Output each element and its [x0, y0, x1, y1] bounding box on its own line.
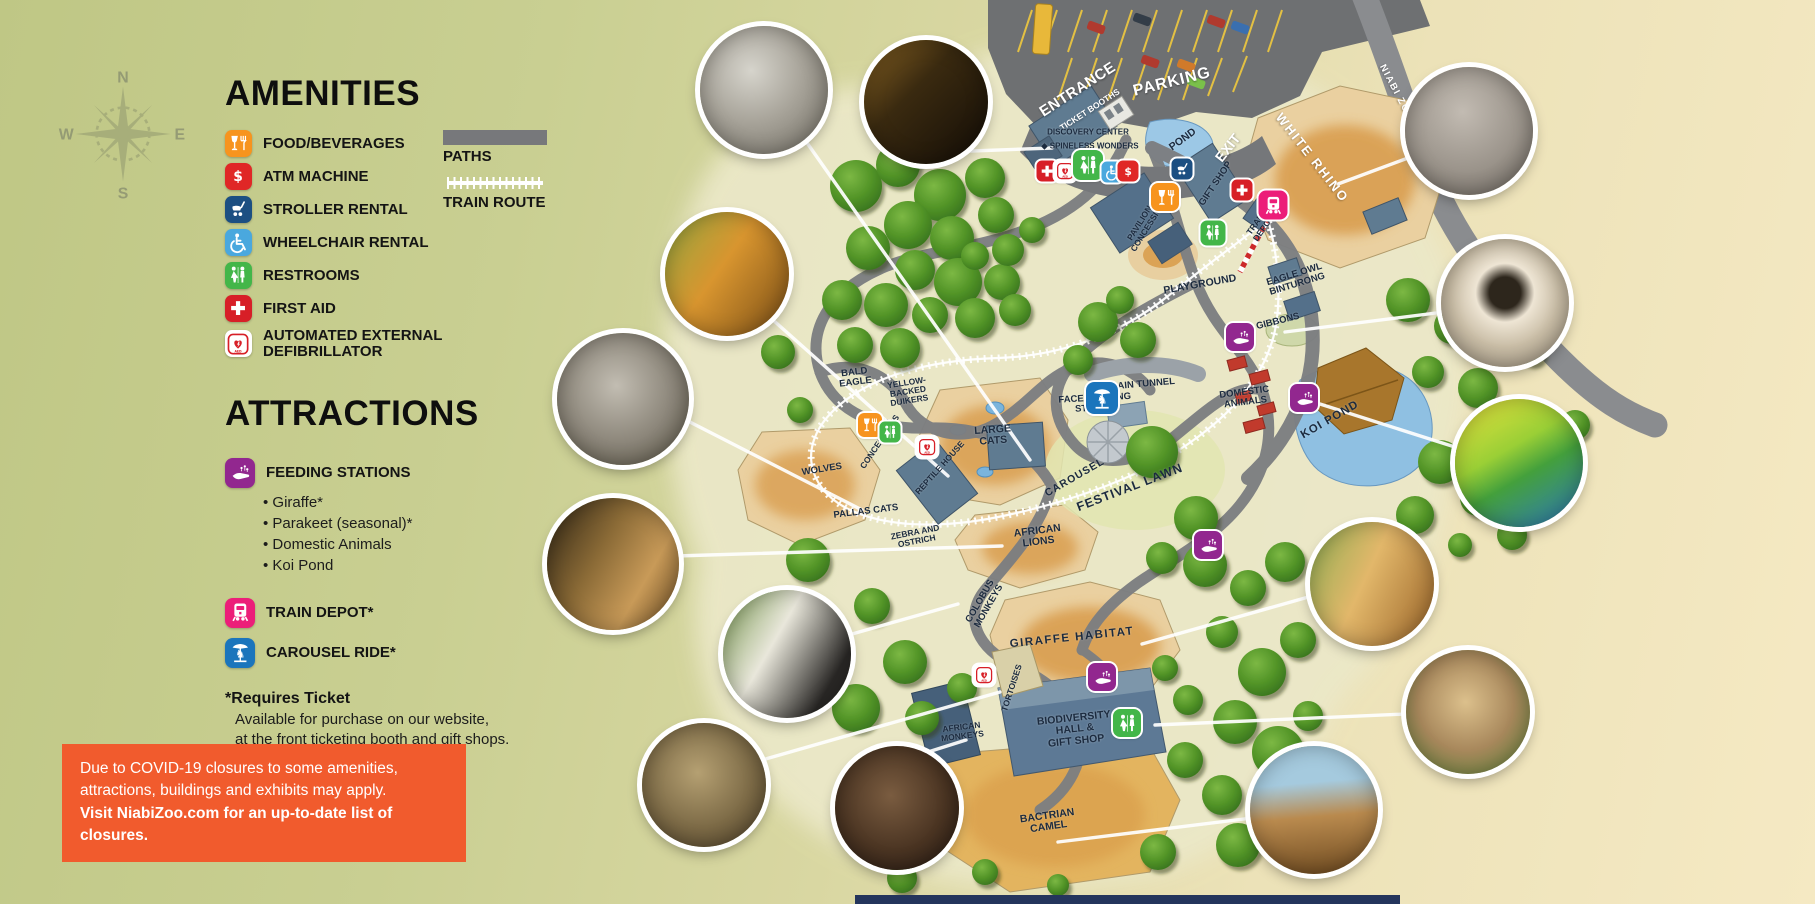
feeding-bullet: Koi Pond — [263, 557, 585, 574]
large-cats-label: LARGE CATS — [974, 423, 1012, 448]
first-aid-icon — [225, 295, 252, 322]
carousel-ride-icon: ♞ — [225, 638, 255, 668]
lioness-photo — [547, 498, 679, 630]
legend-item-first-aid: FIRST AID — [225, 295, 585, 322]
svg-text:AED: AED — [1062, 175, 1068, 178]
feeding-stations-icon — [225, 458, 255, 488]
food-beverages-icon — [225, 130, 252, 157]
restrooms-icon — [1201, 221, 1226, 246]
feeding-station-icon — [1194, 531, 1222, 559]
feeding-station-icon — [1290, 384, 1318, 412]
notice-line: Due to COVID-19 closures to some ameniti… — [80, 758, 448, 780]
snow-leopard-photo — [700, 26, 828, 154]
african-monkey-photo — [835, 746, 959, 870]
restrooms-icon — [880, 422, 901, 443]
bald-eagle-label: BALD EAGLE — [838, 366, 873, 390]
legend-item-restrooms: RESTROOMS — [225, 262, 585, 289]
svg-text:AED: AED — [924, 451, 930, 454]
train-route-label: TRAIN ROUTE — [443, 195, 573, 211]
svg-text:♞: ♞ — [235, 648, 245, 661]
compass-w: W — [59, 126, 74, 143]
feeding-bullet: Parakeet (seasonal)* — [263, 515, 585, 532]
feeding-station-icon — [1088, 663, 1116, 691]
map-bottom-edge — [855, 895, 1400, 904]
legend-item-train-depot: TRAIN DEPOT* — [225, 598, 585, 628]
stroller-icon — [1172, 159, 1193, 180]
feeding-bullet: Domestic Animals — [263, 536, 585, 553]
compass-s: S — [118, 186, 129, 200]
restrooms-icon — [1073, 150, 1103, 180]
requires-ticket-note: *Requires Ticket — [225, 690, 585, 708]
svg-text:AED: AED — [981, 679, 987, 682]
feeding-stations-bullets: Giraffe* Parakeet (seasonal)* Domestic A… — [263, 494, 585, 574]
amenities-title: AMENITIES — [225, 74, 585, 114]
svg-text:$: $ — [234, 170, 244, 186]
compass-e: E — [174, 126, 185, 143]
restrooms-icon — [1113, 709, 1141, 737]
notice-line: attractions, buildings and exhibits may … — [80, 780, 448, 802]
notice-website-line: Visit NiabiZoo.com for an up-to-date lis… — [80, 803, 448, 848]
paths-label: PATHS — [443, 149, 573, 165]
svg-text:♞: ♞ — [1097, 392, 1108, 406]
attractions-title: ATTRACTIONS — [225, 394, 585, 434]
aed-icon: AED — [225, 330, 252, 357]
legend-item-carousel-ride: ♞ CAROUSEL RIDE* — [225, 638, 585, 668]
stroller-icon — [225, 196, 252, 223]
restrooms-icon — [225, 262, 252, 289]
atm-icon: $ — [225, 163, 252, 190]
gibbon-photo — [1441, 239, 1569, 367]
svg-text:AED: AED — [235, 349, 243, 353]
bactrian-camel-photo — [1250, 746, 1378, 874]
ticket-note-line: Available for purchase on our website, — [235, 711, 585, 728]
feeding-bullet: Giraffe* — [263, 494, 585, 511]
wheelchair-icon — [225, 229, 252, 256]
train-route-swatch — [443, 175, 547, 191]
covid-notice: Due to COVID-19 closures to some ameniti… — [62, 744, 466, 862]
first-aid-icon — [1232, 180, 1253, 201]
legend-item-wheelchair: WHEELCHAIR RENTAL — [225, 229, 585, 256]
legend-item-feeding-stations: FEEDING STATIONS — [225, 458, 585, 488]
path-key: PATHS TRAIN ROUTE — [443, 130, 573, 221]
feeding-station-icon — [1226, 323, 1254, 351]
black-widow-spider-photo — [864, 40, 988, 164]
legend-item-aed: AED AUTOMATED EXTERNAL DEFIBRILLATOR — [225, 328, 585, 360]
svg-text:$: $ — [1124, 165, 1131, 178]
niabi-zoo-map: N S W E AMENITIES FOOD/BEVERAGES $ ATM M… — [0, 0, 1815, 904]
pallas-cat-photo — [557, 333, 689, 465]
train-depot-icon — [1259, 191, 1288, 220]
train-depot-icon — [225, 598, 255, 628]
food-beverages-icon — [1151, 183, 1179, 211]
compass-rose: N S W E — [57, 68, 189, 200]
food-beverages-icon — [858, 413, 882, 437]
paths-swatch — [443, 130, 547, 145]
meerkat-photo — [1406, 650, 1530, 774]
white-rhino-photo — [1405, 67, 1533, 195]
colobus-monkey-photo — [723, 590, 851, 718]
compass-n: N — [117, 70, 128, 87]
aed-icon: AED — [917, 437, 938, 458]
parakeet-photo — [1455, 399, 1583, 527]
carousel-ride-icon: ♞ — [1086, 382, 1118, 414]
legend-panel: AMENITIES FOOD/BEVERAGES $ ATM MACHINE S… — [225, 74, 585, 748]
tegu-lizard-photo — [665, 212, 789, 336]
giraffe-photo — [1310, 522, 1434, 646]
atm-icon: $ — [1118, 161, 1139, 182]
tortoise-photo — [642, 723, 766, 847]
attractions-list: FEEDING STATIONS — [225, 458, 585, 488]
discovery-center-label: DISCOVERY CENTER — [1047, 129, 1129, 138]
aed-icon: AED — [974, 665, 995, 686]
